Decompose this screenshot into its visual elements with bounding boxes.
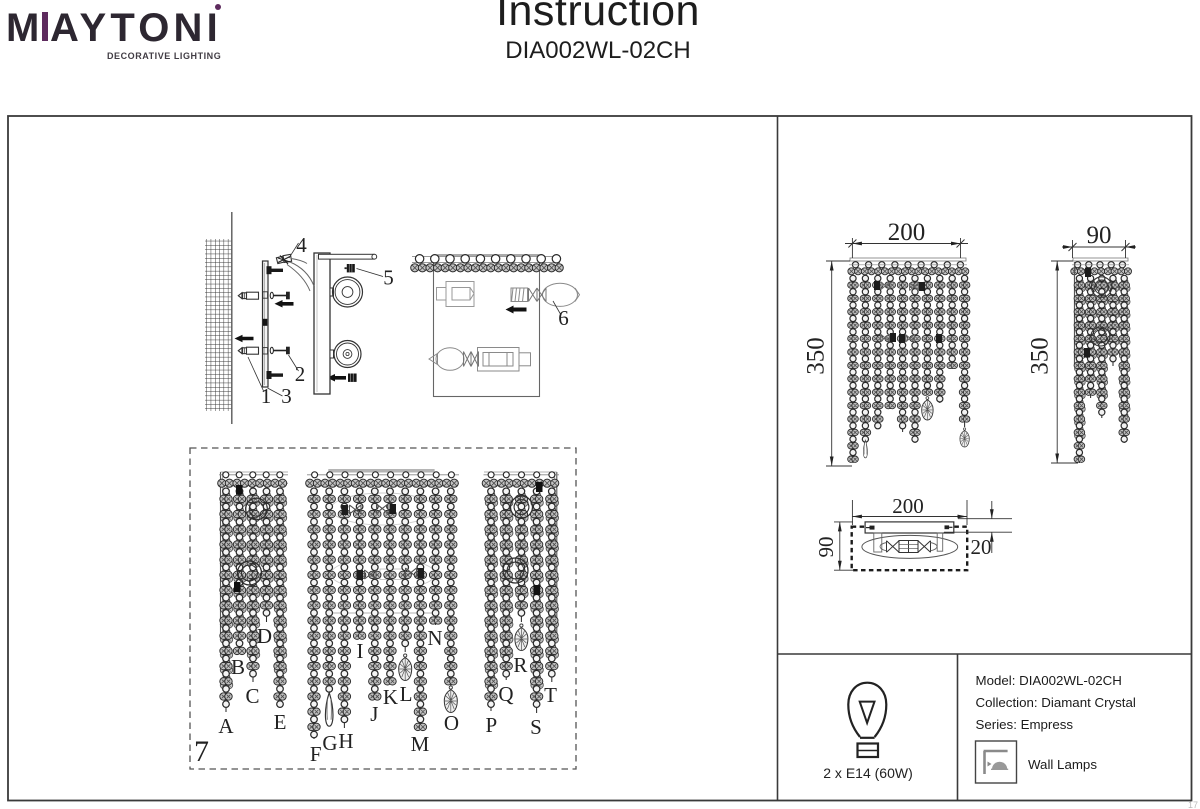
- svg-text:A: A: [218, 714, 234, 738]
- svg-text:P: P: [486, 713, 498, 737]
- svg-text:G: G: [322, 731, 337, 755]
- svg-text:H: H: [338, 729, 353, 753]
- svg-text:20: 20: [971, 535, 992, 559]
- svg-text:K: K: [383, 685, 398, 709]
- svg-text:7: 7: [194, 735, 209, 768]
- svg-text:R: R: [513, 653, 527, 677]
- svg-text:17: 17: [1188, 800, 1198, 809]
- svg-text:3: 3: [281, 384, 292, 408]
- svg-text:350: 350: [803, 337, 830, 375]
- svg-text:B: B: [231, 655, 245, 679]
- svg-text:F: F: [310, 742, 322, 766]
- svg-text:J: J: [370, 702, 378, 726]
- svg-text:2: 2: [295, 362, 306, 386]
- svg-text:Series: Empress: Series: Empress: [976, 717, 1074, 732]
- svg-text:Q: Q: [498, 682, 513, 706]
- svg-text:90: 90: [1087, 222, 1112, 249]
- svg-text:2 x E14 (60W): 2 x E14 (60W): [823, 765, 912, 781]
- svg-text:E: E: [274, 710, 287, 734]
- svg-text:S: S: [530, 715, 542, 739]
- svg-text:6: 6: [558, 306, 569, 330]
- svg-text:Model: DIA002WL-02CH: Model: DIA002WL-02CH: [976, 673, 1122, 688]
- svg-text:D: D: [257, 624, 272, 648]
- svg-text:350: 350: [1027, 337, 1054, 375]
- svg-text:C: C: [245, 684, 259, 708]
- svg-text:M: M: [411, 732, 430, 756]
- svg-text:90: 90: [814, 537, 838, 558]
- svg-text:T: T: [544, 683, 557, 707]
- svg-text:1: 1: [261, 384, 272, 408]
- svg-text:L: L: [400, 682, 413, 706]
- svg-text:I: I: [357, 639, 364, 663]
- svg-text:4: 4: [296, 233, 307, 257]
- svg-text:Collection: Diamant Crystal: Collection: Diamant Crystal: [976, 695, 1136, 710]
- svg-text:200: 200: [888, 219, 926, 246]
- svg-text:Wall Lamps: Wall Lamps: [1028, 757, 1097, 772]
- svg-text:5: 5: [383, 266, 394, 290]
- svg-text:N: N: [427, 626, 442, 650]
- svg-text:O: O: [444, 711, 459, 735]
- svg-text:200: 200: [892, 494, 924, 518]
